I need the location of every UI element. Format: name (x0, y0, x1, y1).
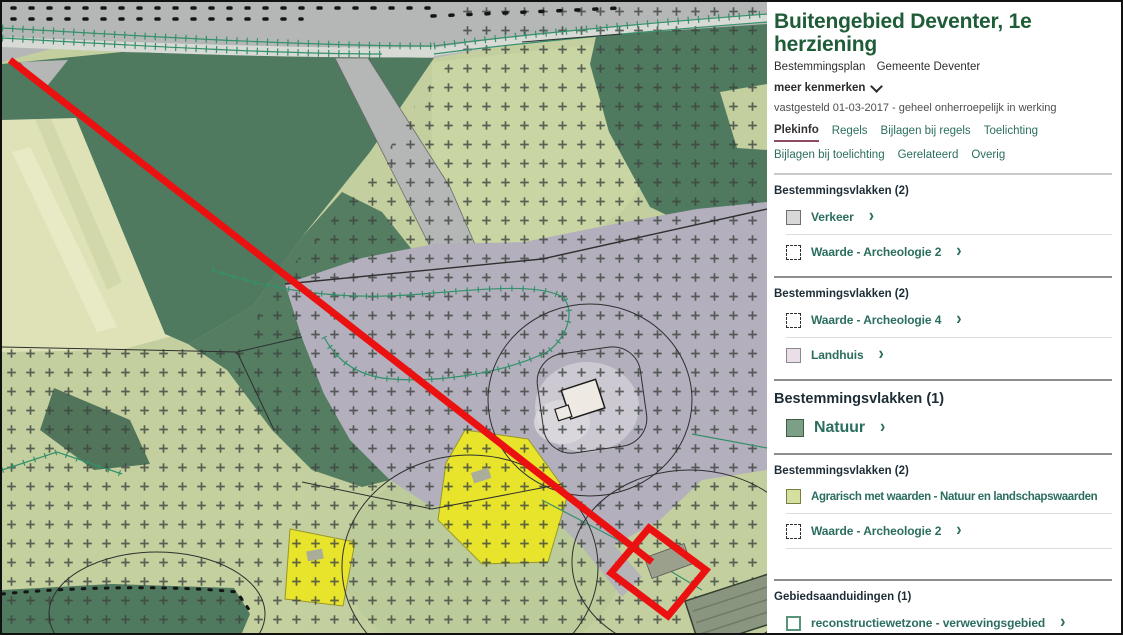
landhuis-swatch-icon (786, 348, 801, 363)
plan-type: Bestemmingsplan (774, 61, 865, 73)
archeologie-swatch-icon (786, 524, 801, 539)
chevron-right-icon: › (1060, 614, 1065, 632)
legend-item-label: Natuur (814, 419, 865, 437)
plan-municipality: Gemeente Deventer (877, 61, 981, 73)
legend-section: Bestemmingsvlakken (2)Verkeer›Waarde - A… (774, 175, 1112, 276)
legend-item-label: reconstructiewetzone - verwevingsgebied (811, 616, 1045, 630)
legend-item-label: Waarde - Archeologie 4 (811, 313, 941, 327)
more-details-toggle[interactable]: meer kenmerken (774, 82, 1112, 94)
natuur-swatch-icon (786, 419, 804, 437)
legend-item-label: Agrarisch met waarden - Natuur en landsc… (811, 491, 1097, 503)
legend-item-verkeer[interactable]: Verkeer› (774, 200, 1112, 234)
legend-item-waarde-archeologie-2[interactable]: Waarde - Archeologie 2› (774, 235, 1112, 269)
archeologie-swatch-icon (786, 313, 801, 328)
item-divider (786, 548, 1112, 549)
plekinfo-sections: Bestemmingsvlakken (2)Verkeer›Waarde - A… (774, 175, 1112, 633)
gebiedsaanduiding-swatch-icon (786, 616, 801, 631)
section-header: Gebiedsaanduidingen (1) (774, 591, 1112, 603)
archeologie-swatch-icon (786, 245, 801, 260)
map-canvas[interactable] (2, 2, 767, 633)
section-header: Bestemmingsvlakken (2) (774, 185, 1112, 197)
section-header: Bestemmingsvlakken (2) (774, 465, 1112, 477)
section-header: Bestemmingsvlakken (2) (774, 288, 1112, 300)
plan-subtitle: Bestemmingsplan Gemeente Deventer (774, 61, 1112, 73)
legend-section: Gebiedsaanduidingen (1)reconstructiewetz… (774, 579, 1112, 633)
legend-item-waarde-archeologie-2[interactable]: Waarde - Archeologie 2› (774, 514, 1112, 548)
legend-item-natuur[interactable]: Natuur› (774, 410, 1112, 446)
agrarisch-swatch-icon (786, 489, 801, 504)
chevron-right-icon: › (869, 208, 874, 226)
tab-toelichting[interactable]: Toelichting (984, 124, 1038, 142)
tab-bijlagen-bij-toelichting[interactable]: Bijlagen bij toelichting (774, 149, 885, 165)
section-header: Bestemmingsvlakken (1) (774, 391, 1112, 407)
plan-status: vastgesteld 01-03-2017 - geheel onherroe… (774, 102, 1112, 114)
legend-item-label: Waarde - Archeologie 2 (811, 524, 941, 538)
legend-item-label: Verkeer (811, 210, 854, 224)
app-window: Buitengebied Deventer, 1e herziening Bes… (0, 0, 1123, 635)
legend-item-landhuis[interactable]: Landhuis› (774, 338, 1112, 372)
chevron-right-icon: › (956, 243, 961, 261)
plan-info-panel: Buitengebied Deventer, 1e herziening Bes… (767, 2, 1121, 633)
more-details-label: meer kenmerken (774, 82, 865, 94)
chevron-right-icon: › (880, 419, 885, 437)
legend-section: Bestemmingsvlakken (1)Natuur› (774, 379, 1112, 453)
legend-section: Bestemmingsvlakken (2)Agrarisch met waar… (774, 453, 1112, 579)
legend-item-label: Landhuis (811, 348, 864, 362)
map-aerial-view (2, 2, 767, 633)
tab-bijlagen-bij-regels[interactable]: Bijlagen bij regels (881, 124, 971, 142)
legend-item-waarde-archeologie-4[interactable]: Waarde - Archeologie 4› (774, 303, 1112, 337)
plan-title: Buitengebied Deventer, 1e herziening (774, 10, 1112, 56)
tab-bar: PlekinfoRegelsBijlagen bij regelsToelich… (774, 124, 1112, 175)
verkeer-swatch-icon (786, 210, 801, 225)
tab-plekinfo[interactable]: Plekinfo (774, 124, 819, 142)
tab-regels[interactable]: Regels (832, 124, 868, 142)
legend-item-reconstructiewetzone-verwevingsgebied[interactable]: reconstructiewetzone - verwevingsgebied› (774, 606, 1112, 633)
chevron-right-icon: › (956, 311, 961, 329)
legend-item-label: Waarde - Archeologie 2 (811, 245, 941, 259)
legend-section: Bestemmingsvlakken (2)Waarde - Archeolog… (774, 276, 1112, 379)
chevron-down-icon (871, 80, 884, 93)
chevron-right-icon: › (956, 522, 961, 540)
tab-gerelateerd[interactable]: Gerelateerd (898, 149, 959, 165)
chevron-right-icon: › (879, 346, 884, 364)
legend-item-agrarisch-met-waarden-natuur-en-landschapswaarden[interactable]: Agrarisch met waarden - Natuur en landsc… (774, 480, 1112, 513)
tab-overig[interactable]: Overig (971, 149, 1005, 165)
